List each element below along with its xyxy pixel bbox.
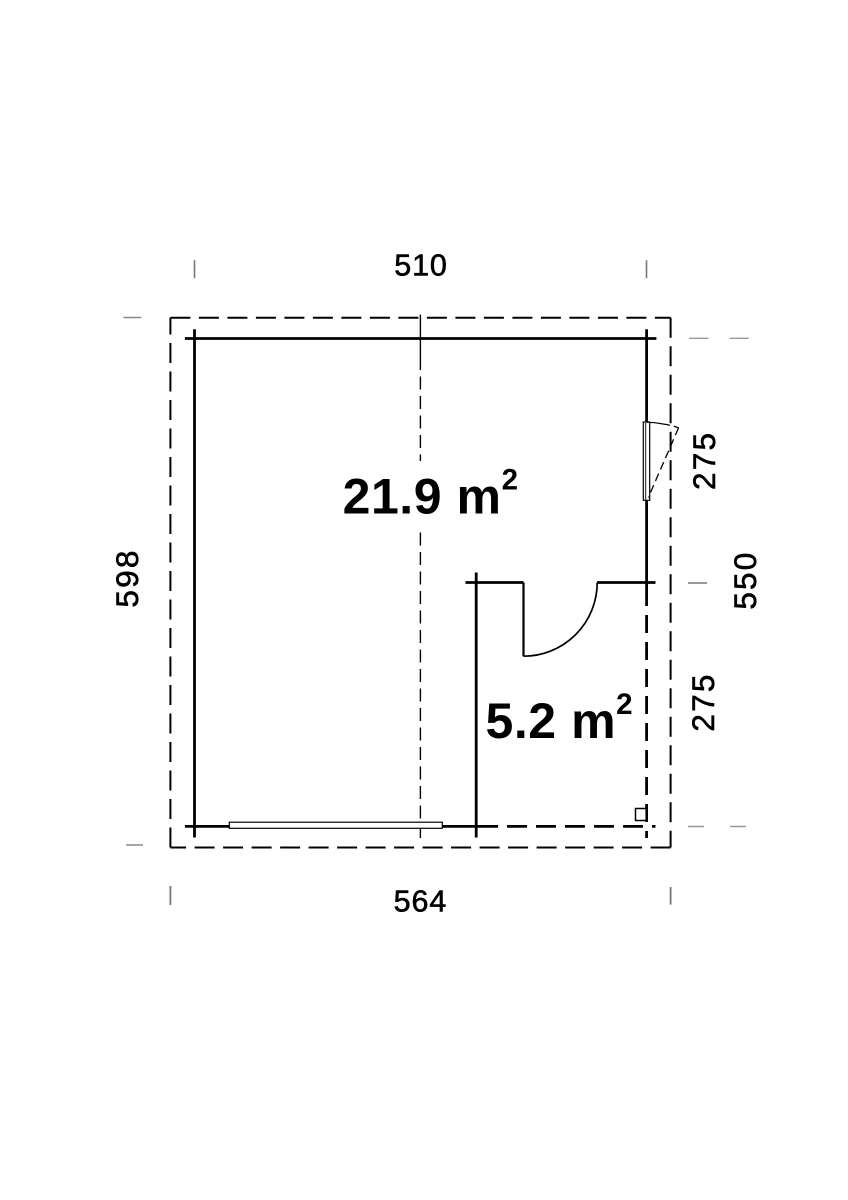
svg-text:275: 275: [685, 672, 721, 731]
svg-text:21.9 m2: 21.9 m2: [343, 463, 519, 524]
svg-text:550: 550: [727, 551, 763, 610]
svg-text:5.2 m2: 5.2 m2: [486, 688, 634, 749]
svg-text:510: 510: [394, 249, 448, 283]
svg-text:598: 598: [109, 548, 145, 607]
svg-text:564: 564: [394, 884, 448, 918]
svg-text:275: 275: [686, 431, 722, 490]
